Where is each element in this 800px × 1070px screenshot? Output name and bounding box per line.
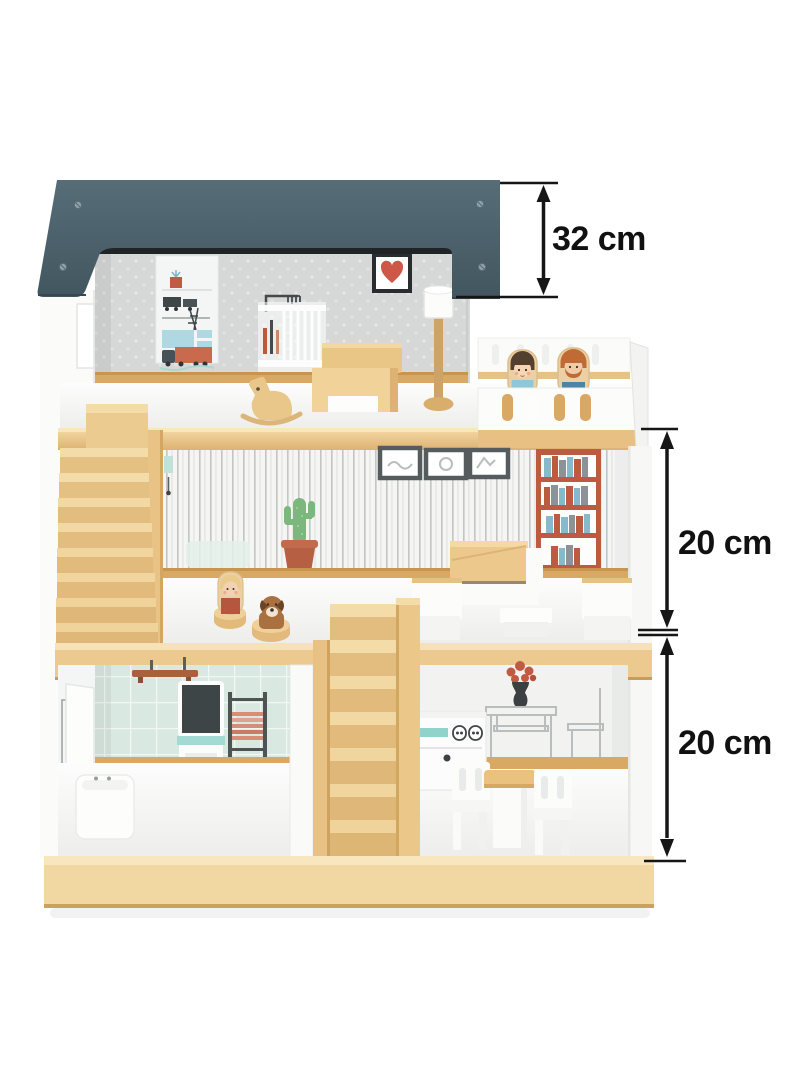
- dimension-label-upper-floor: 20 cm: [678, 524, 772, 562]
- dimension-upper-floor: 20 cm: [638, 429, 772, 630]
- balcony-back-rail: [478, 338, 630, 372]
- bookshelf-print: [536, 449, 601, 571]
- roof-screw: [479, 264, 486, 271]
- roof-screw: [60, 264, 67, 271]
- heart-picture: [374, 255, 410, 291]
- stair-stringer-cap: [396, 598, 420, 605]
- stair-steps: [56, 448, 158, 646]
- balcony-floor-edge: [478, 430, 648, 448]
- left-wall-window: [77, 304, 94, 368]
- stair-landing-top: [86, 404, 148, 413]
- couch-print: [186, 541, 250, 568]
- bathtub: [76, 775, 134, 839]
- picture-frame: [380, 448, 420, 478]
- balcony: [478, 338, 648, 452]
- wooden-bed: [312, 343, 402, 412]
- armchair-right: [582, 578, 632, 640]
- picture-frames: [380, 448, 508, 478]
- product-photo: 32 cm 20 cm 20 cm: [0, 0, 800, 1070]
- crib-print: [258, 296, 326, 372]
- balcony-inner-floor: [478, 372, 630, 379]
- chalkboard: [180, 683, 222, 735]
- divider-wall: [290, 665, 313, 858]
- peg-doll-girl: [214, 572, 246, 629]
- floor-shadow: [50, 908, 650, 918]
- stair-post-left-edge: [327, 640, 330, 858]
- dimension-label-roof: 32 cm: [552, 220, 646, 258]
- roof-screw: [477, 201, 484, 208]
- stair-steps: [330, 604, 396, 858]
- stair-stringer-edge: [396, 598, 399, 858]
- living-wall-right-shade: [615, 450, 628, 580]
- base-plinth: [44, 856, 654, 908]
- kitchen-wall-right-shade: [612, 665, 628, 765]
- picture-frame: [426, 450, 466, 478]
- stair-stringer-right: [396, 598, 420, 858]
- nursery-poster-print: [156, 256, 218, 370]
- dollhouse: [38, 180, 654, 918]
- mirror-panel: [66, 684, 94, 775]
- dimension-label-ground-floor: 20 cm: [678, 724, 772, 762]
- coffee-table: [500, 608, 552, 637]
- roof-screw: [75, 202, 82, 209]
- living-baseboard-edge: [163, 568, 628, 571]
- attic-baseboard-edge: [95, 372, 468, 375]
- bathroom-corner-shade: [95, 665, 111, 765]
- attic-wall-corner-shade: [95, 250, 111, 385]
- dollhouse-illustration: 32 cm 20 cm 20 cm: [0, 0, 800, 1070]
- dimension-ground-floor: 20 cm: [638, 635, 772, 861]
- picture-frame: [470, 450, 508, 477]
